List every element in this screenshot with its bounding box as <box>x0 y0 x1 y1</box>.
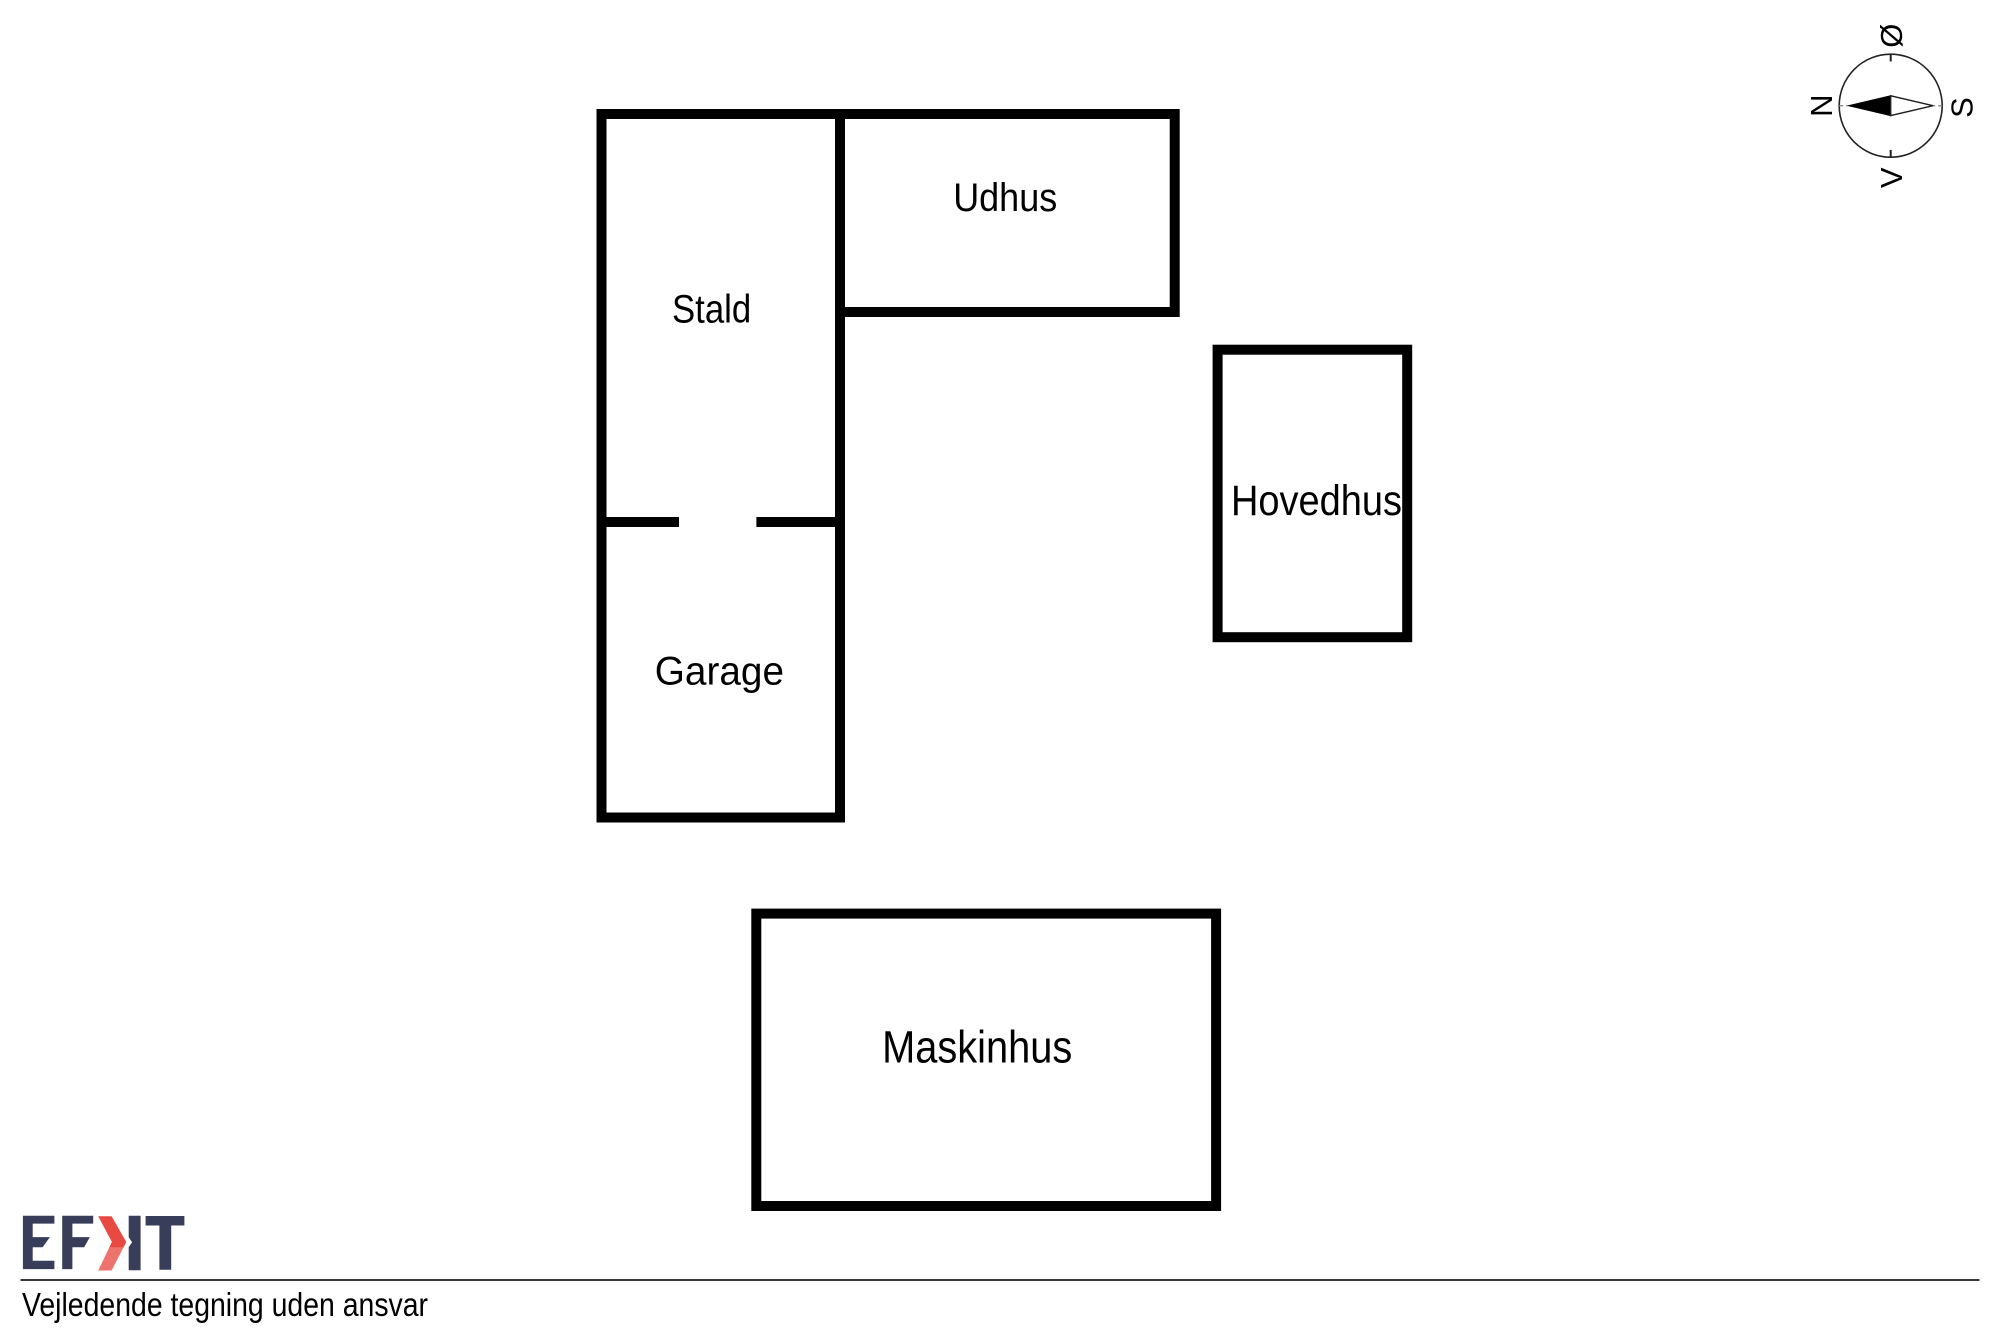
svg-text:Stald: Stald <box>672 287 751 331</box>
svg-text:V: V <box>1874 167 1909 188</box>
svg-text:Vejledende tegning uden ansvar: Vejledende tegning uden ansvar <box>22 1287 428 1324</box>
svg-text:S: S <box>1945 97 1980 118</box>
svg-text:Ø: Ø <box>1874 24 1909 48</box>
svg-text:Garage: Garage <box>655 650 784 694</box>
svg-text:Udhus: Udhus <box>953 176 1057 220</box>
svg-text:Maskinhus: Maskinhus <box>882 1022 1072 1073</box>
svg-text:N: N <box>1804 95 1839 117</box>
svg-text:Hovedhus: Hovedhus <box>1231 478 1402 525</box>
